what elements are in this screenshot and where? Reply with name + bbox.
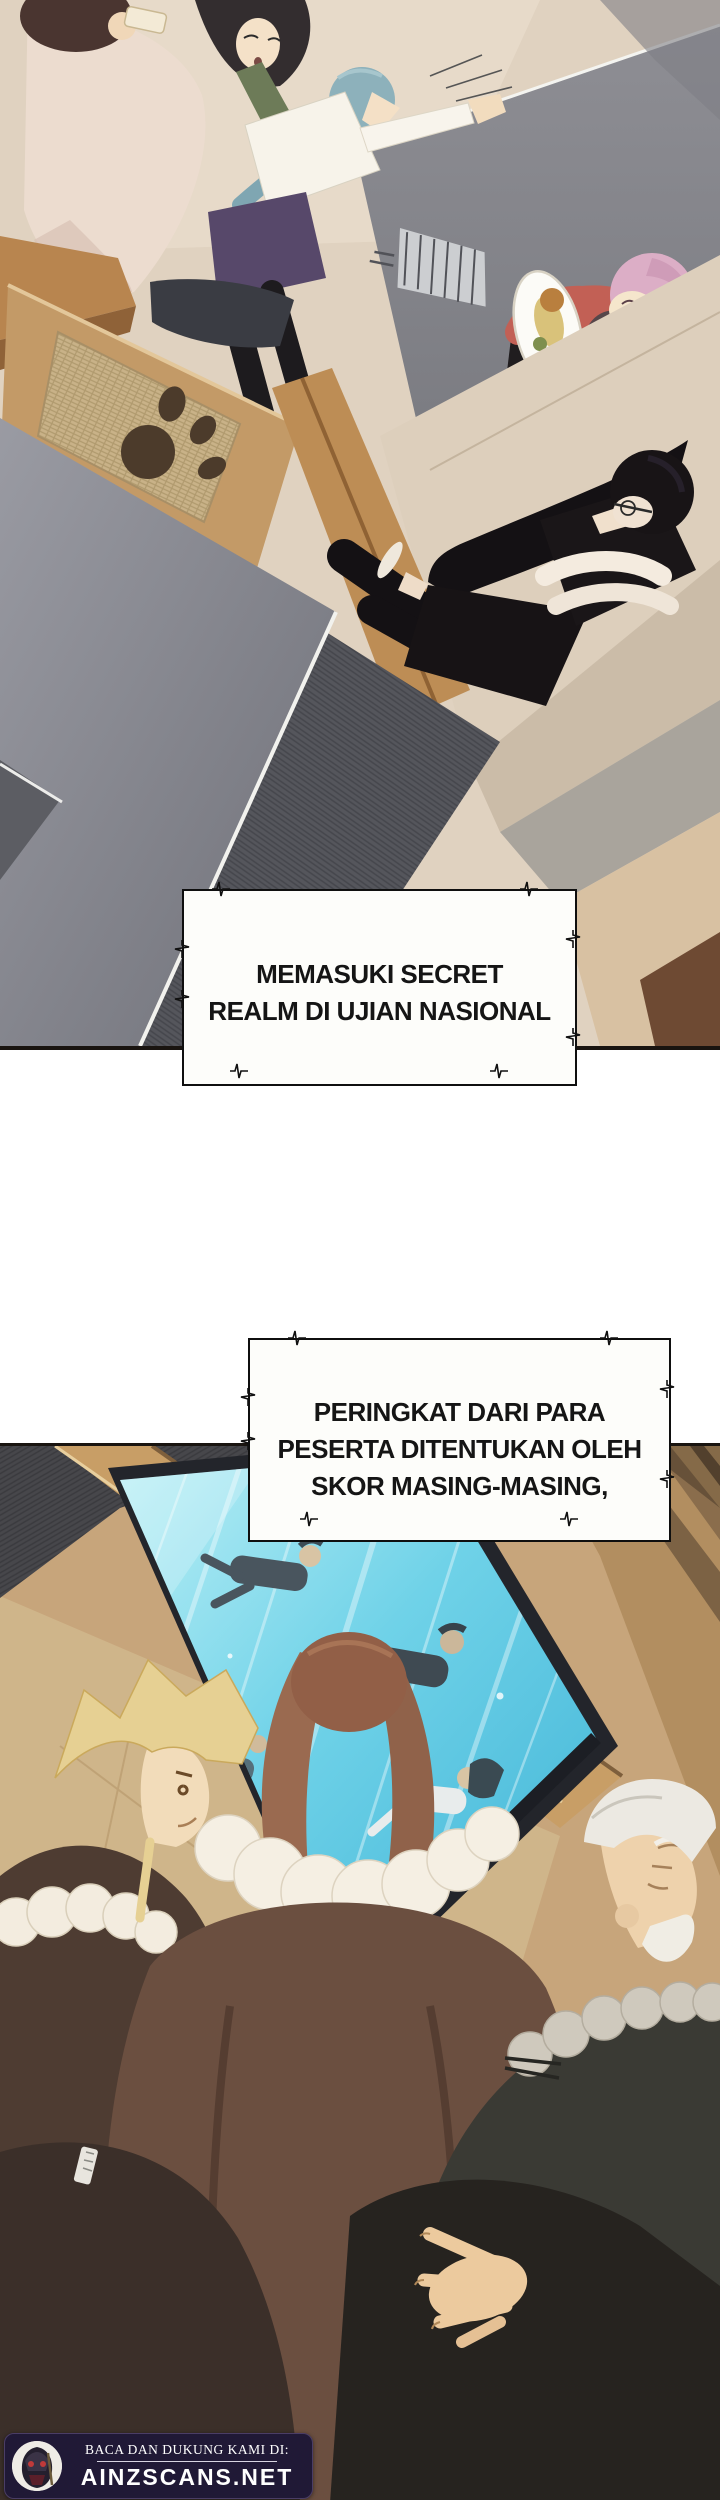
manga-page: MEMASUKI SECRET REALM DI UJIAN NASIONAL … — [0, 0, 720, 2500]
caption-line: REALM DI UJIAN NASIONAL — [208, 993, 550, 1030]
scanlation-credit-badge[interactable]: BACA DAN DUKUNG KAMI DI: AINZSCANS.NET — [4, 2433, 313, 2499]
caption-line: SKOR MASING-MASING, — [311, 1468, 608, 1505]
caption-box-2: PERINGKAT DARI PARA PESERTA DITENTUKAN O… — [248, 1338, 671, 1542]
caption-box-1: MEMASUKI SECRET REALM DI UJIAN NASIONAL — [182, 889, 577, 1086]
badge-text: BACA DAN DUKUNG KAMI DI: AINZSCANS.NET — [70, 2442, 312, 2491]
panel-bottom-artwork — [0, 1446, 720, 2500]
badge-divider — [97, 2461, 277, 2462]
caption-line: MEMASUKI SECRET — [256, 956, 503, 993]
caption-line: PERINGKAT DARI PARA — [314, 1394, 605, 1431]
caption-line: PESERTA DITENTUKAN OLEH — [277, 1431, 641, 1468]
badge-tagline: BACA DAN DUKUNG KAMI DI: — [85, 2442, 289, 2458]
panel-bottom-screen-scene — [0, 1443, 720, 2500]
badge-site-url[interactable]: AINZSCANS.NET — [81, 2464, 294, 2491]
ainz-logo-icon — [12, 2441, 62, 2491]
